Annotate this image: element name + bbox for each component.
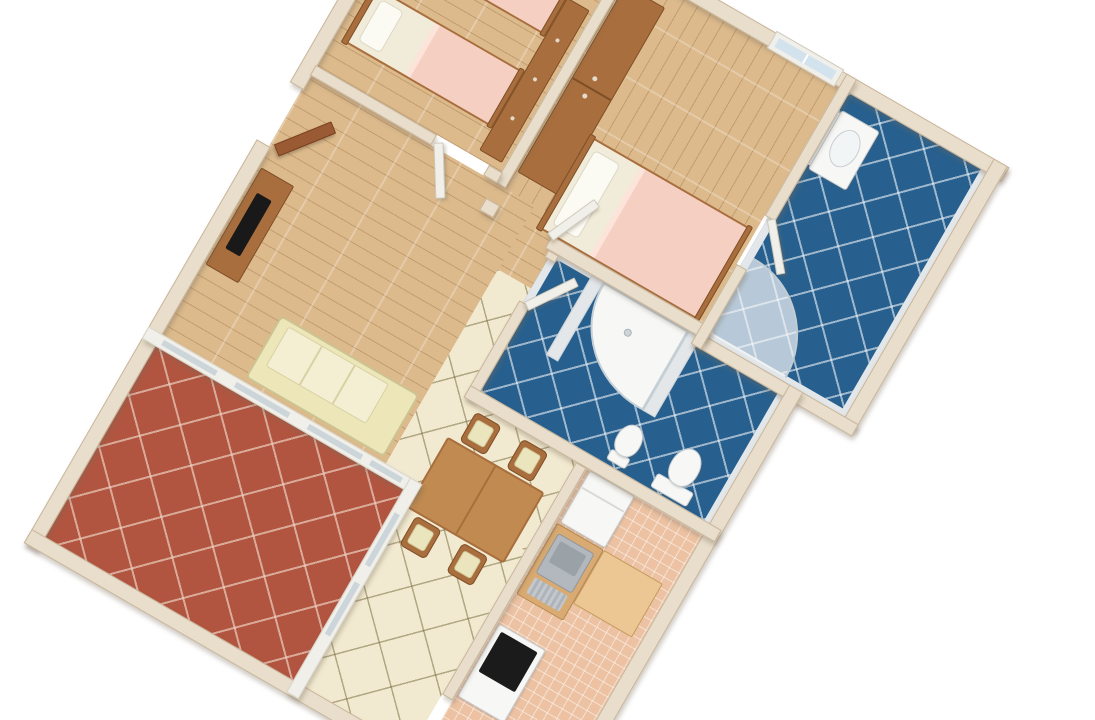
floorplan-render xyxy=(0,0,1095,720)
apartment-plan xyxy=(38,0,992,720)
twin-bedroom-door xyxy=(433,142,445,198)
